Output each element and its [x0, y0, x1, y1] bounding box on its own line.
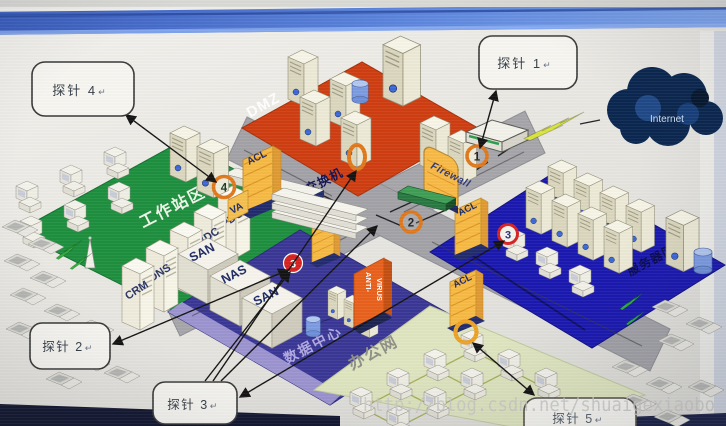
server-icon	[300, 90, 330, 146]
server-icon	[604, 220, 633, 273]
laptop-icon	[46, 372, 82, 389]
photographed-screen: DMZ 工作站区 数据中心 办公网 服务器区 核心交换机 PDC	[0, 0, 726, 426]
screen-top-edge	[0, 0, 726, 7]
desktop-pc-icon	[536, 247, 561, 279]
laptop-icon	[30, 271, 66, 288]
desktop-pc-icon	[64, 200, 89, 232]
database-icon	[306, 316, 320, 337]
server-icon	[383, 36, 421, 106]
marker-digit-1: 1	[474, 152, 481, 164]
desktop-pc-icon	[461, 330, 486, 362]
antivirus-label: VIRUS	[375, 278, 384, 301]
database-icon	[352, 80, 368, 103]
desktop-pc-icon	[424, 349, 449, 381]
desktop-pc-icon	[569, 265, 594, 297]
lightning-bolt-icon	[524, 112, 584, 141]
marker-digit-2: 2	[408, 218, 414, 230]
network-topology-diagram: DMZ 工作站区 数据中心 办公网 服务器区 核心交换机 PDC	[0, 0, 726, 426]
laptop-icon	[104, 366, 140, 383]
window-title-bar	[0, 4, 726, 35]
server-icon	[170, 126, 200, 182]
desktop-edge	[714, 31, 726, 426]
database-icon	[694, 248, 712, 274]
desktop-pc-icon	[60, 165, 85, 197]
laptop-icon	[10, 288, 46, 305]
internet-label: Internet	[650, 114, 684, 125]
desktop-pc-icon	[16, 181, 41, 213]
marker-digit-3b: 3	[505, 230, 511, 242]
desktop-pc-icon	[108, 182, 133, 214]
laptop-icon	[646, 377, 682, 394]
marker-digit-4: 4	[221, 183, 228, 195]
antivirus-label: ANTI-	[364, 272, 373, 292]
server-icon	[328, 286, 346, 320]
server-icon	[578, 207, 607, 260]
desktop-pc-icon	[498, 349, 523, 381]
server-icon	[552, 194, 581, 247]
desktop-pc-icon	[104, 147, 129, 179]
laptop-icon	[44, 304, 80, 321]
server-icon	[526, 181, 555, 234]
laptop-icon	[4, 254, 40, 271]
watermark: http://blog.csdn.net/shuaigexiaobo	[363, 394, 715, 416]
